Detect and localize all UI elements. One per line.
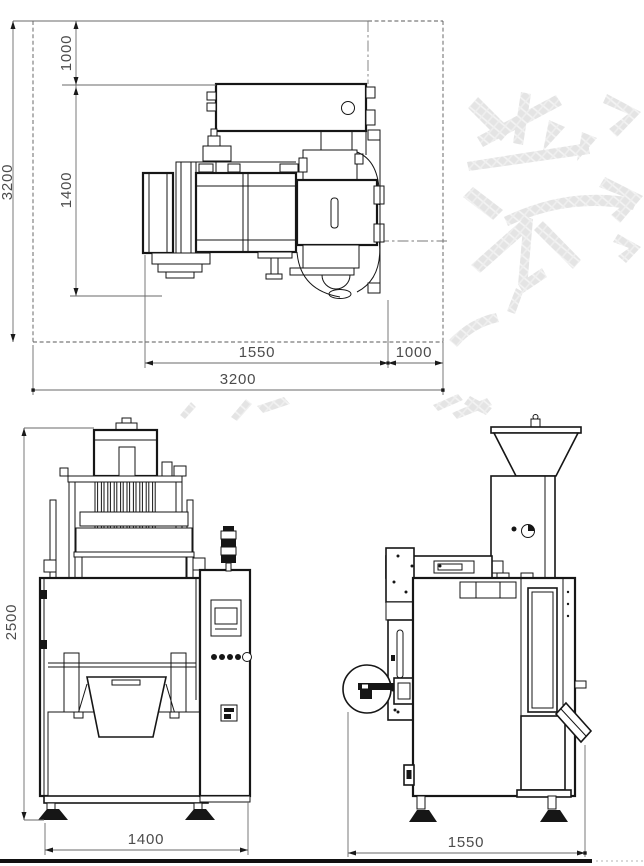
front-view-machine: [38, 418, 252, 820]
panel-button: [227, 654, 233, 660]
dim-front-height: 2500: [3, 604, 20, 641]
dim-offset-right: 1000: [396, 344, 433, 361]
signal-tower: [221, 526, 236, 571]
dim-front-width: 1400: [128, 831, 165, 848]
dim-body-width: 1550: [239, 344, 276, 361]
panel-button: [243, 653, 252, 662]
top-view: 3200 1000 1400 1550 1000: [0, 21, 447, 395]
sheet-bottom-edge: [0, 859, 592, 863]
dim-side-depth: 1550: [448, 834, 485, 851]
drawing-page: 3200 1000 1400 1550 1000: [0, 0, 644, 866]
front-view: 2500 1400: [3, 418, 252, 855]
side-view: 1550: [343, 415, 591, 858]
side-view-machine: [343, 415, 591, 823]
dim-overall-width: 3200: [220, 371, 257, 388]
panel-button: [211, 654, 217, 660]
top-view-machine: [143, 84, 384, 299]
dim-offset-top: 1000: [58, 35, 75, 72]
drawing-canvas: 3200 1000 1400 1550 1000: [0, 0, 644, 866]
dim-overall-height: 3200: [0, 164, 16, 201]
panel-button: [219, 654, 225, 660]
panel-button: [235, 654, 241, 660]
dim-body-depth: 1400: [58, 172, 75, 209]
control-cabinet: [200, 570, 252, 802]
